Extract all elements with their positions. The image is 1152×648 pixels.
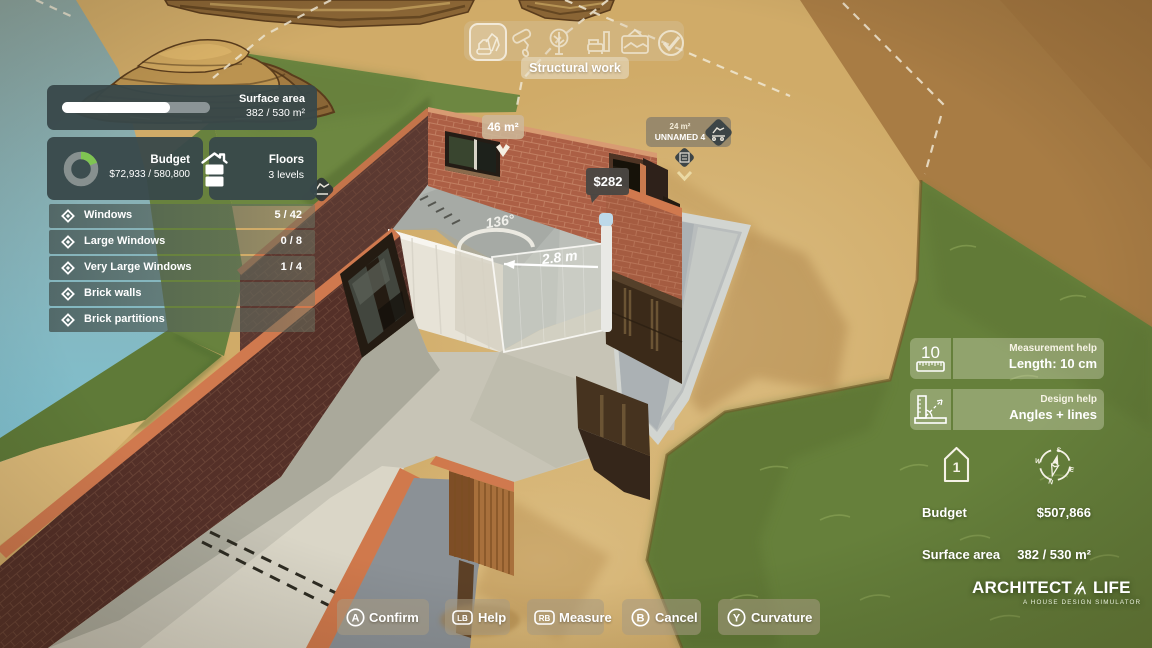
- svg-text:E: E: [1069, 466, 1075, 474]
- svg-text:LB: LB: [457, 614, 468, 623]
- svg-text:RB: RB: [539, 614, 551, 623]
- svg-text:A: A: [352, 613, 360, 625]
- svg-text:B: B: [637, 613, 645, 625]
- svg-text:Y: Y: [733, 613, 741, 625]
- svg-text:1: 1: [953, 459, 961, 475]
- svg-text:W: W: [1035, 458, 1042, 466]
- svg-text:10: 10: [921, 343, 940, 362]
- svg-text:N: N: [1048, 479, 1055, 485]
